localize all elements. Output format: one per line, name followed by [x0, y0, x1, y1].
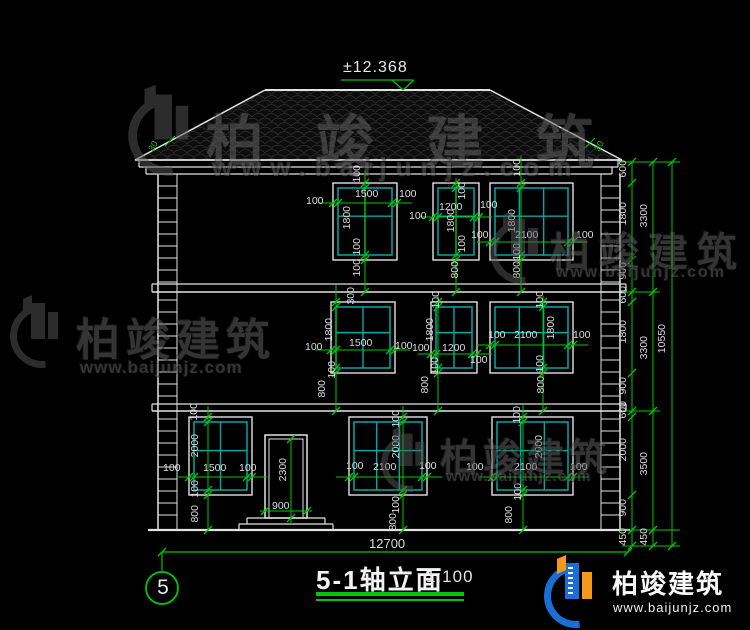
dim-label: 100: [470, 355, 488, 366]
brand-name: 柏竣建筑: [612, 564, 724, 601]
dim-label: 1800: [446, 209, 457, 232]
logo-tower: [31, 303, 45, 339]
dim-label: 100: [430, 357, 441, 375]
dim-label: 100: [457, 235, 468, 253]
watermark-logo-icon: [490, 212, 552, 278]
watermark-url: www.baijunjz.com: [212, 152, 580, 183]
dim-label: 100: [412, 343, 430, 354]
dim-label: 100: [391, 410, 402, 428]
dim-label-total-width: 12700: [369, 536, 405, 551]
dim-label: 800: [190, 505, 201, 523]
elevation-mark: ±12.368: [343, 59, 408, 77]
dim-label: 2100: [514, 330, 537, 341]
logo-windows: [568, 567, 573, 595]
dim-label: 100: [395, 341, 413, 352]
dim-label-door-width: 900: [272, 501, 290, 512]
dim-label: 100: [457, 182, 468, 200]
dim-label: 800: [536, 376, 547, 394]
dim-label: 100: [431, 291, 442, 309]
logo-tower-orange: [582, 572, 592, 599]
brand-url: www.baijunjz.com: [613, 600, 732, 615]
dim-label: 100: [391, 496, 402, 514]
elevation-drawing-canvas: ±12.368 30 30 600 1800 900 600 1800 900 …: [0, 0, 750, 630]
dim-label: 2000: [190, 434, 201, 457]
dim-label: 100: [409, 211, 427, 222]
dim-label: 100: [352, 259, 363, 277]
dim-label: 800: [420, 376, 431, 394]
dim-label: 100: [305, 342, 323, 353]
dim-label: 100: [352, 238, 363, 256]
dim-label: 100: [513, 483, 524, 501]
watermark-logo-icon: [10, 296, 72, 362]
dim-label: 100: [399, 189, 417, 200]
dim-label: 3500: [639, 452, 650, 475]
dim-label: 1500: [349, 338, 372, 349]
dim-label: 900: [618, 377, 629, 395]
brand-logo-icon: [544, 556, 606, 622]
dim-label: 800: [450, 261, 461, 279]
logo-tower-orange: [48, 312, 58, 339]
dim-label: 800: [388, 513, 399, 531]
dim-label: 600: [618, 286, 629, 304]
dim-label: 100: [535, 355, 546, 373]
dim-label: 1800: [618, 320, 629, 343]
dim-label: 300: [346, 287, 357, 305]
dim-label: 100: [573, 330, 591, 341]
logo-tower-orange: [176, 106, 189, 140]
dim-label: 100: [306, 196, 324, 207]
watermark-url: www.baijunjz.com: [446, 468, 591, 485]
logo-tower-orange: [415, 442, 424, 466]
dim-label: 2000: [618, 438, 629, 461]
dim-label: 900: [618, 499, 629, 517]
dim-label: 100: [488, 330, 506, 341]
dim-label: 450: [639, 528, 650, 546]
dim-label: 3300: [639, 336, 650, 359]
dim-label: 800: [317, 380, 328, 398]
title-underline: [316, 592, 464, 596]
dim-label: 100: [189, 403, 200, 421]
watermark-url: www.baijunjz.com: [556, 264, 726, 282]
dim-label: 600: [618, 401, 629, 419]
dim-label: 100: [239, 463, 257, 474]
dim-label: 100: [190, 480, 201, 498]
dim-label: 100: [471, 230, 489, 241]
dim-label: 1800: [546, 316, 557, 339]
watermark-url: www.baijunjz.com: [80, 358, 243, 378]
dim-label-total-height: 10550: [657, 324, 668, 353]
dim-label: 100: [480, 200, 498, 211]
dim-label: 100: [346, 461, 364, 472]
dim-label: 800: [504, 506, 515, 524]
dim-label: 450: [618, 528, 629, 546]
logo-tower: [511, 219, 525, 255]
logo-tower-orange: [528, 228, 538, 255]
axis-bubble-number: 5: [150, 576, 176, 600]
dim-label: 1800: [425, 318, 436, 341]
watermark-logo-icon: [128, 86, 206, 169]
logo-tower: [400, 434, 413, 466]
drawing-scale: 1:100: [426, 567, 474, 587]
dim-label: 100: [327, 361, 338, 379]
dim-label-door-height: 2300: [278, 458, 289, 481]
dim-label: 1800: [342, 206, 353, 229]
dim-label: 100: [163, 463, 181, 474]
dim-label: 100: [535, 291, 546, 309]
dim-label: 1500: [355, 189, 378, 200]
logo-tower: [155, 95, 173, 140]
watermark-logo-icon: [381, 427, 437, 486]
dim-label: 1500: [203, 463, 226, 474]
title-underline-2: [316, 599, 464, 601]
dim-label: 1200: [442, 343, 465, 354]
dim-label: 1800: [324, 318, 335, 341]
dim-label: 100: [512, 406, 523, 424]
